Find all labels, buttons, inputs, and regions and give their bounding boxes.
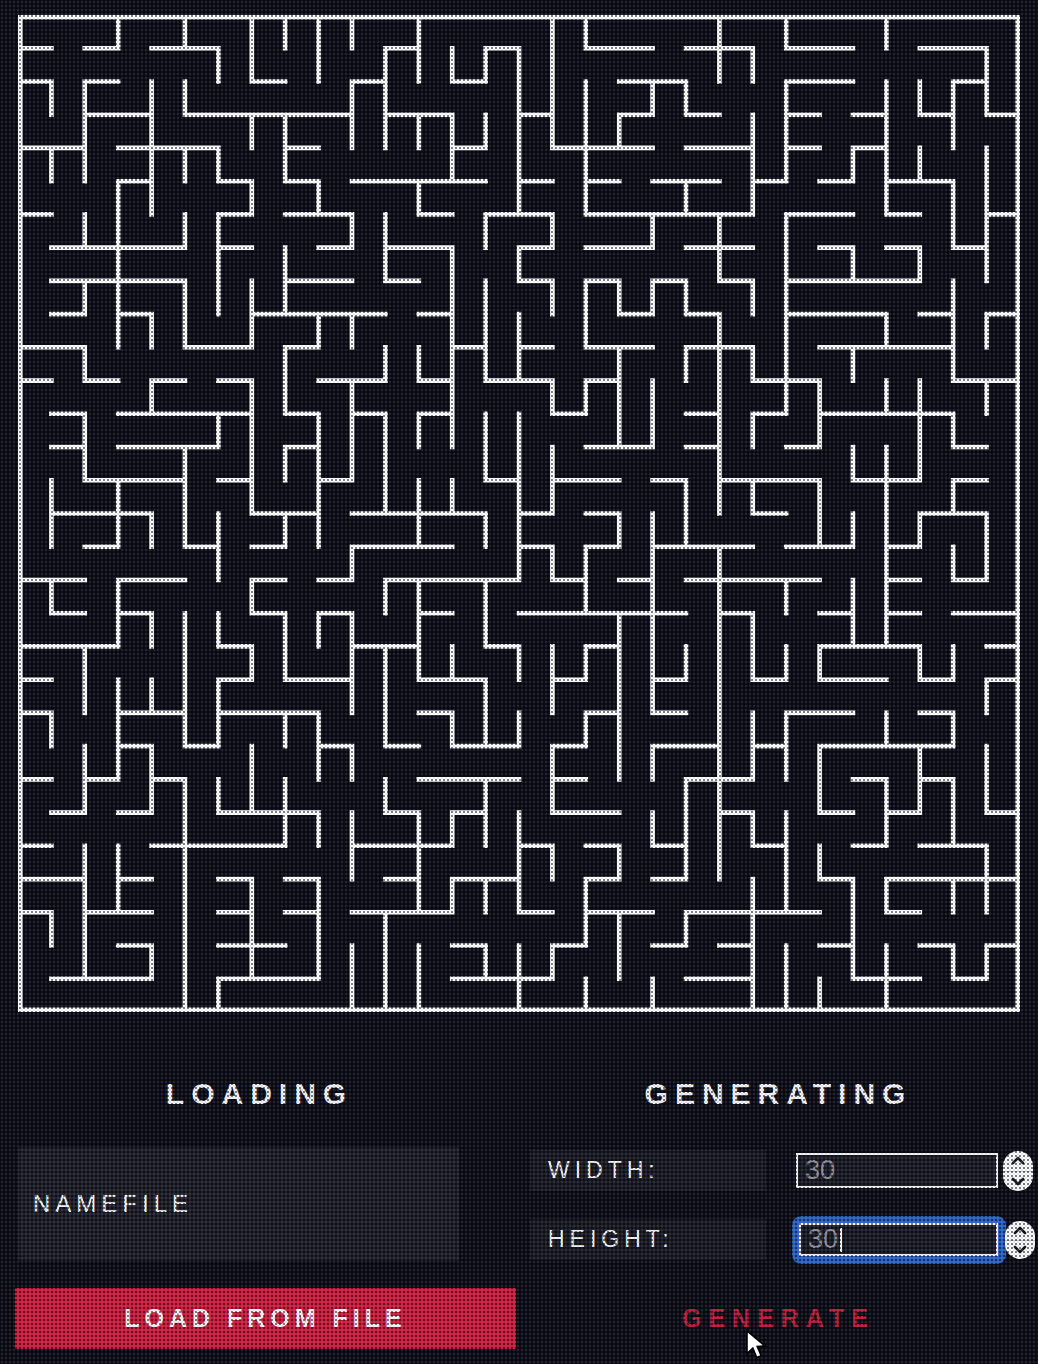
load-from-file-button[interactable]: LOAD FROM FILE (15, 1288, 516, 1349)
width-stepper-up-button[interactable] (1003, 1151, 1033, 1171)
width-value: 30 (805, 1155, 835, 1186)
height-input[interactable]: 30 (799, 1223, 998, 1256)
height-value: 30 (808, 1224, 838, 1255)
width-stepper (1003, 1151, 1033, 1191)
generate-button[interactable]: GENERATE (519, 1303, 1038, 1334)
chevron-down-icon (1010, 1177, 1026, 1186)
generating-section-title: GENERATING (519, 1077, 1038, 1111)
maze-view (18, 15, 1020, 1012)
chevron-up-icon (1010, 1156, 1026, 1165)
maze-walls (18, 15, 1020, 1012)
width-input[interactable]: 30 (796, 1153, 998, 1188)
text-caret (840, 1228, 842, 1252)
chevron-down-icon (1012, 1245, 1028, 1254)
width-stepper-down-button[interactable] (1003, 1172, 1033, 1192)
height-stepper-down-button[interactable] (1005, 1241, 1035, 1260)
height-stepper (1005, 1221, 1035, 1259)
chevron-up-icon (1012, 1226, 1028, 1235)
width-label: WIDTH: (530, 1150, 766, 1191)
height-label: HEIGHT: (530, 1219, 766, 1260)
loading-section-title: LOADING (0, 1077, 519, 1111)
height-stepper-up-button[interactable] (1005, 1221, 1035, 1240)
namefile-input[interactable]: NAMEFILE (18, 1147, 459, 1261)
namefile-value: NAMEFILE (33, 1190, 193, 1218)
